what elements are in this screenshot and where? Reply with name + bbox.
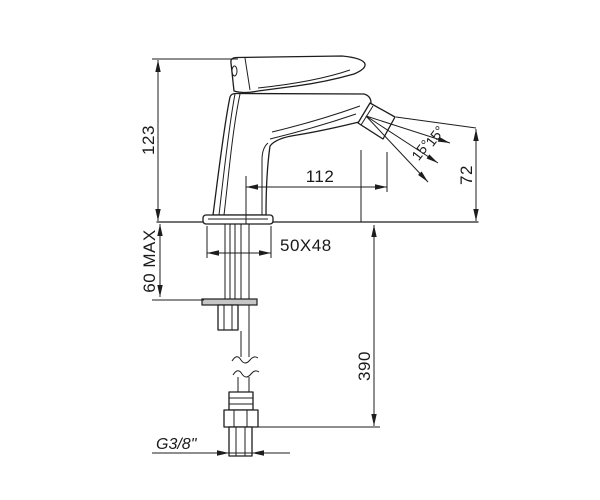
mounting-washer bbox=[202, 299, 257, 305]
drawing-sheet: 123 60 MAX 112 50X48 72 bbox=[0, 0, 600, 500]
dim-label-60-max: 60 MAX bbox=[140, 229, 159, 292]
dim-g38: G3/8" bbox=[152, 436, 290, 456]
dim-60-max: 60 MAX bbox=[140, 224, 204, 300]
faucet-body bbox=[213, 94, 371, 216]
dim-label-72: 72 bbox=[457, 165, 476, 185]
dim-390: 390 bbox=[257, 225, 380, 427]
hose-hex-nut bbox=[224, 410, 258, 427]
base-flange bbox=[203, 215, 273, 224]
dim-50x48: 50X48 bbox=[207, 226, 332, 258]
hose-connector bbox=[224, 392, 258, 456]
technical-drawing: 123 60 MAX 112 50X48 72 bbox=[0, 0, 600, 500]
dim-label-123: 123 bbox=[139, 125, 158, 155]
dim-label-g38: G3/8" bbox=[156, 436, 198, 453]
faucet-handle bbox=[231, 56, 365, 93]
dim-label-390: 390 bbox=[355, 351, 374, 381]
hose-ferrule bbox=[229, 392, 253, 410]
thread-tip bbox=[229, 427, 252, 456]
mounting-nut bbox=[218, 305, 238, 330]
dim-label-112: 112 bbox=[306, 167, 335, 186]
dim-label-50x48: 50X48 bbox=[280, 236, 332, 255]
pipe-break-symbol bbox=[232, 357, 258, 363]
